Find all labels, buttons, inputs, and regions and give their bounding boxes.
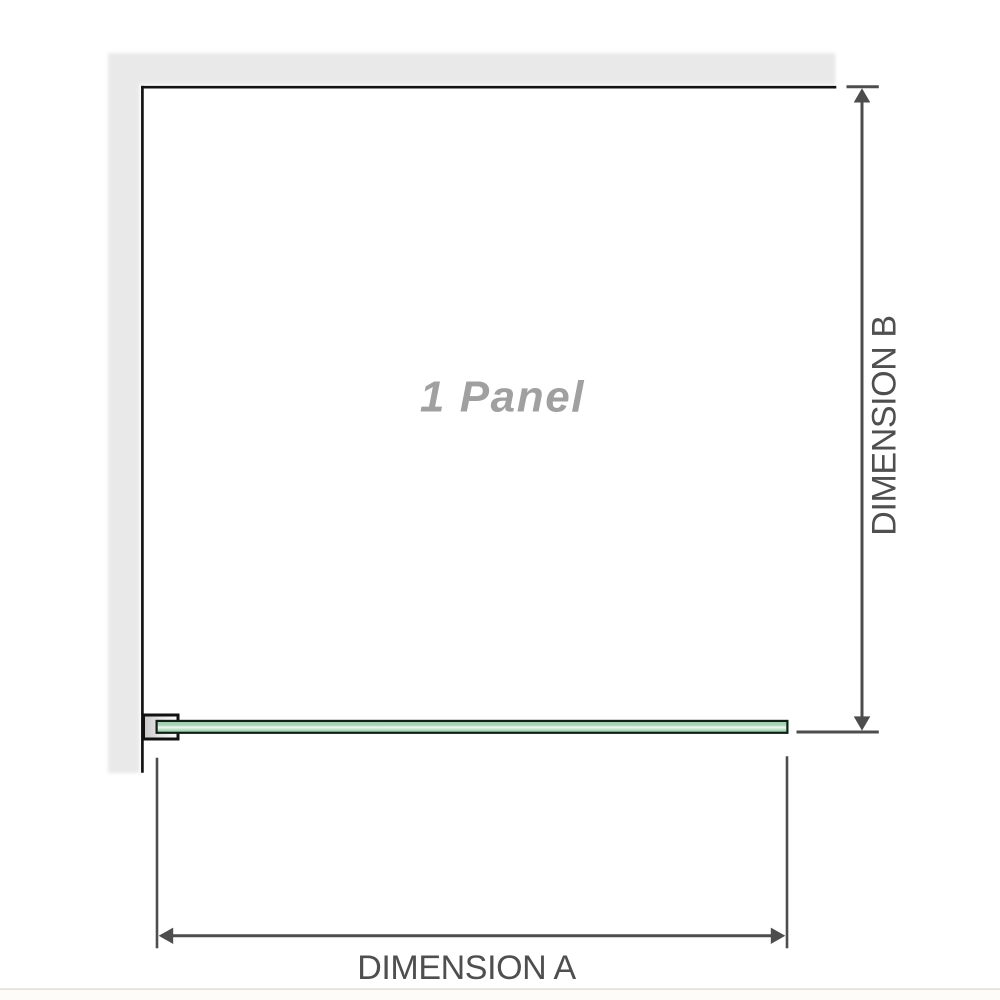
svg-text:DIMENSION B: DIMENSION B bbox=[866, 315, 904, 535]
svg-text:1 Panel: 1 Panel bbox=[420, 373, 585, 422]
svg-text:DIMENSION A: DIMENSION A bbox=[357, 949, 576, 987]
